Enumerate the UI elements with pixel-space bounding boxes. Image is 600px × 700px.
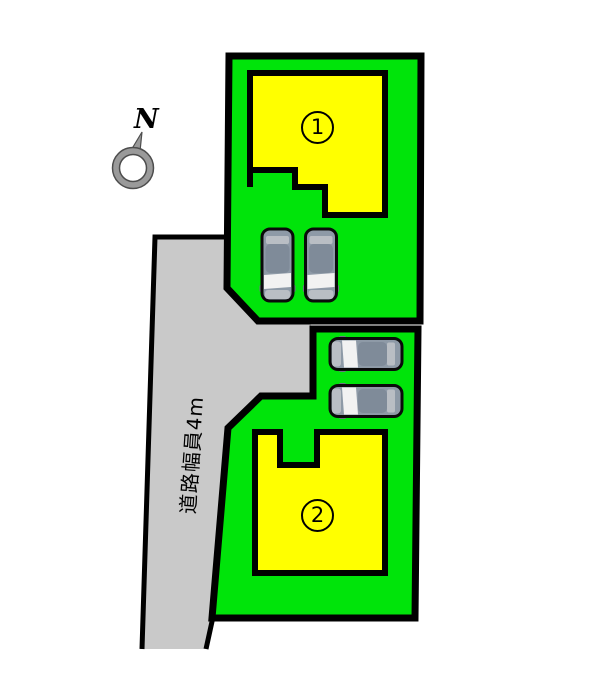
car-icon	[330, 383, 402, 419]
site-plan-canvas: N 道路幅員4m 1 2	[0, 0, 600, 700]
car-icon	[260, 229, 296, 301]
lot-2-label: 2	[301, 499, 334, 532]
car-icon	[330, 336, 402, 372]
site-plan-drawing	[0, 0, 600, 700]
lot-1-label: 1	[301, 111, 334, 144]
compass-ring	[116, 151, 150, 185]
compass-north-label: N	[134, 106, 159, 133]
car-icon	[303, 229, 339, 301]
lot-2-number: 2	[311, 505, 324, 526]
lot-1-number: 1	[311, 117, 324, 138]
compass-north-icon	[113, 132, 154, 189]
